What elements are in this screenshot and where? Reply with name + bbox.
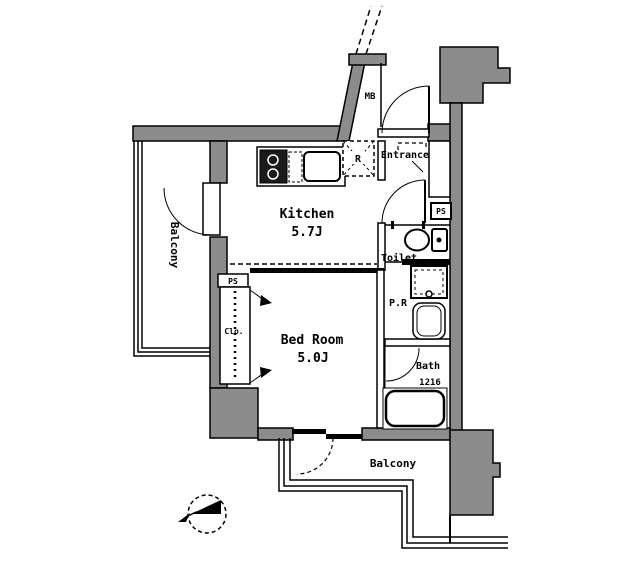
closet-door-arrow-icon <box>260 367 272 378</box>
ps-right-label: PS <box>436 207 446 216</box>
toilet-bowl-icon <box>405 230 429 251</box>
bedroom-balcony-door-arc <box>297 438 333 474</box>
wall-top-band <box>133 126 347 141</box>
bedroom-label: Bed Room <box>281 333 344 348</box>
bedroom-window-panel <box>326 434 362 439</box>
floor-plan-drawing: Kitchen 5.7J Bed Room 5.0J Balcony Balco… <box>0 0 640 569</box>
bath-door-arc <box>386 348 419 381</box>
floor-plan: Kitchen 5.7J Bed Room 5.0J Balcony Balco… <box>0 0 640 569</box>
front-door-sill <box>378 129 429 137</box>
wall-mb-diagonal <box>337 57 366 141</box>
bedroom-window-panel <box>292 429 326 434</box>
bedroom-top-wall <box>250 268 384 273</box>
toilet-label: Toilet <box>381 252 417 264</box>
ps-left-label: PS <box>228 277 238 286</box>
fixtures <box>220 141 447 429</box>
bathtub-icon <box>386 391 444 426</box>
toilet-tank-dot <box>437 238 442 243</box>
kitchen-size-label: 5.7J <box>291 225 322 240</box>
wall-right <box>450 103 462 440</box>
balcony-left-label: Balcony <box>168 222 181 269</box>
bath-size-label: 1216 <box>419 378 441 388</box>
wall-bottom-band-left <box>258 428 293 440</box>
wall-bottom-band-right <box>362 428 450 440</box>
corridor-boundary-dash <box>356 6 371 54</box>
hall-door-arc <box>382 180 425 223</box>
closet-door-arrow-icon <box>260 295 272 306</box>
pr-bottom-wall <box>385 339 450 346</box>
entrance-label: Entrance <box>381 150 429 161</box>
entrance-step-line <box>398 143 426 150</box>
shoe-cabinet <box>429 141 450 197</box>
washer-drain-icon <box>426 291 432 297</box>
toilet-door-jamb <box>391 221 394 229</box>
compass-north-icon <box>178 495 226 533</box>
meter-box-label: MB <box>365 92 376 102</box>
kitchen-sink <box>304 152 340 181</box>
kitchen-label: Kitchen <box>280 207 335 222</box>
structure-block-top-right <box>440 47 510 103</box>
wall-corner-block-bottom-left <box>210 388 258 438</box>
structure-block-bottom-right <box>450 430 500 515</box>
refrigerator-label: R <box>355 154 362 165</box>
entrance-diagonal-mark <box>412 161 423 172</box>
bedroom-size-label: 5.0J <box>297 351 328 366</box>
kitchen-balcony-door-leaf <box>203 183 220 235</box>
washbasin-icon <box>413 303 445 339</box>
wall-balcony-upper <box>210 141 227 183</box>
walls <box>133 47 510 515</box>
front-door-arc <box>382 86 429 133</box>
powder-room-label: P.R <box>389 298 408 309</box>
balcony-bottom-label: Balcony <box>370 457 417 470</box>
closet-label: Clo. <box>224 327 243 336</box>
bath-label: Bath <box>416 361 440 372</box>
